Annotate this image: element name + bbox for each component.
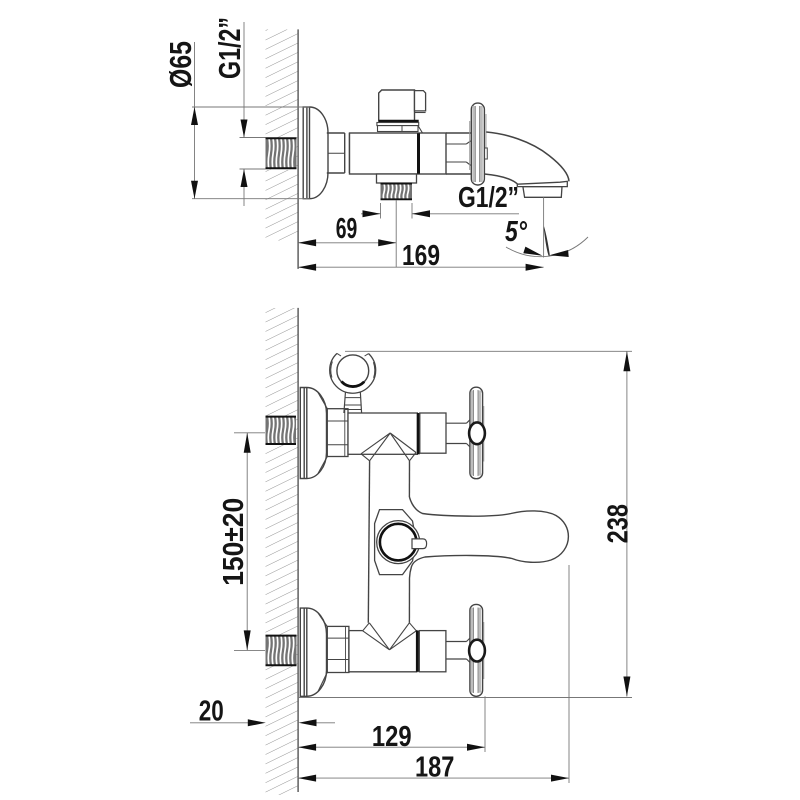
svg-text:129: 129	[372, 721, 412, 753]
svg-text:20: 20	[199, 695, 224, 727]
svg-text:G1/2”: G1/2”	[458, 182, 519, 214]
svg-text:238: 238	[603, 504, 635, 543]
svg-text:69: 69	[336, 213, 358, 245]
svg-text:Ø65: Ø65	[163, 41, 198, 88]
svg-text:G1/2”: G1/2”	[212, 17, 247, 79]
svg-text:150±20: 150±20	[218, 498, 250, 586]
svg-text:5°: 5°	[505, 216, 527, 248]
svg-text:169: 169	[402, 240, 440, 272]
svg-text:187: 187	[415, 752, 454, 784]
